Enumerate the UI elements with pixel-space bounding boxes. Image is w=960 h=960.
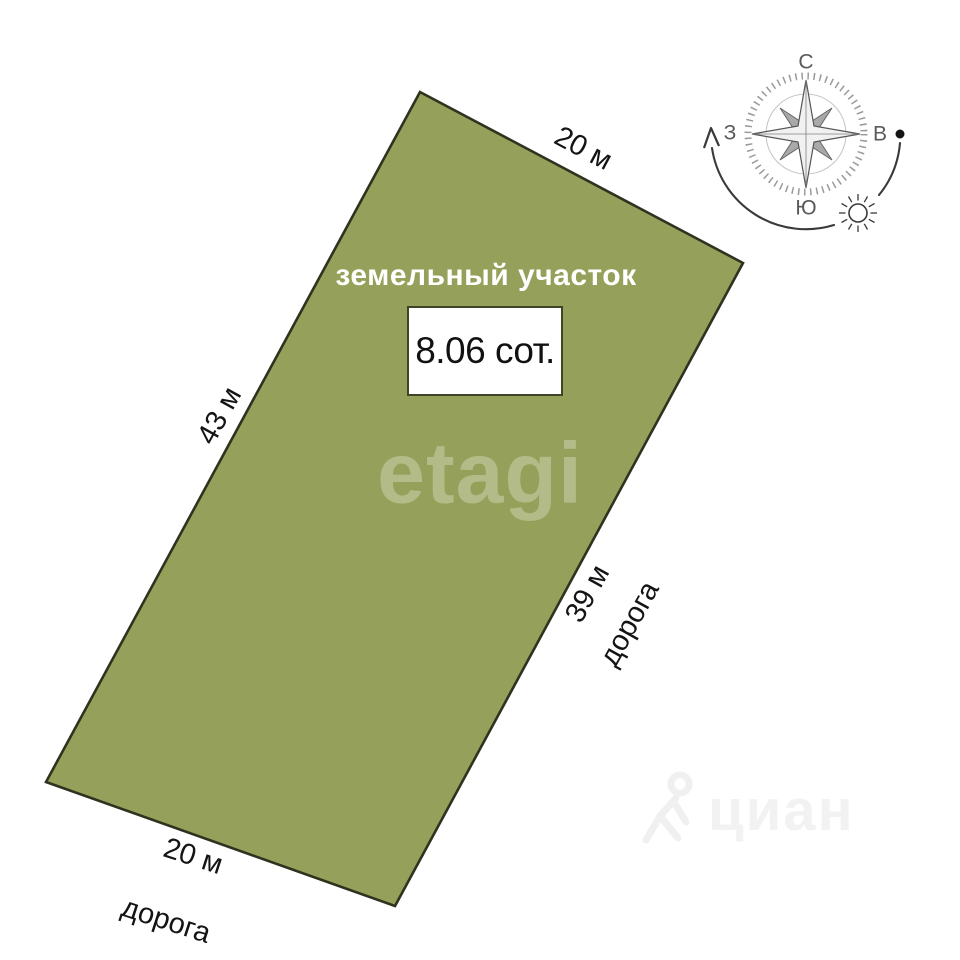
watermark-cian: циан [638,764,868,856]
compass-label-west: З [724,122,737,145]
east-marker-dot-icon [896,130,905,139]
sun-path-arc-right [879,143,900,195]
compass-label-north: С [798,51,813,74]
watermark-etagi: etagi [377,425,583,524]
sun-icon [839,194,877,232]
land-plot-diagram: etagi земельный участок 8.06 сот. 20 м 4… [0,0,960,960]
watermark-cian-text: циан [708,777,855,844]
cian-logo-icon [638,768,700,852]
compass-label-east: В [873,123,887,146]
arc-arrowhead-icon [704,128,719,148]
compass-label-south: Ю [795,197,816,220]
area-title: земельный участок [335,259,636,293]
compass-rose-icon: С В Ю З [688,42,924,254]
area-value: 8.06 сот. [415,330,555,372]
area-value-box: 8.06 сот. [407,306,563,396]
